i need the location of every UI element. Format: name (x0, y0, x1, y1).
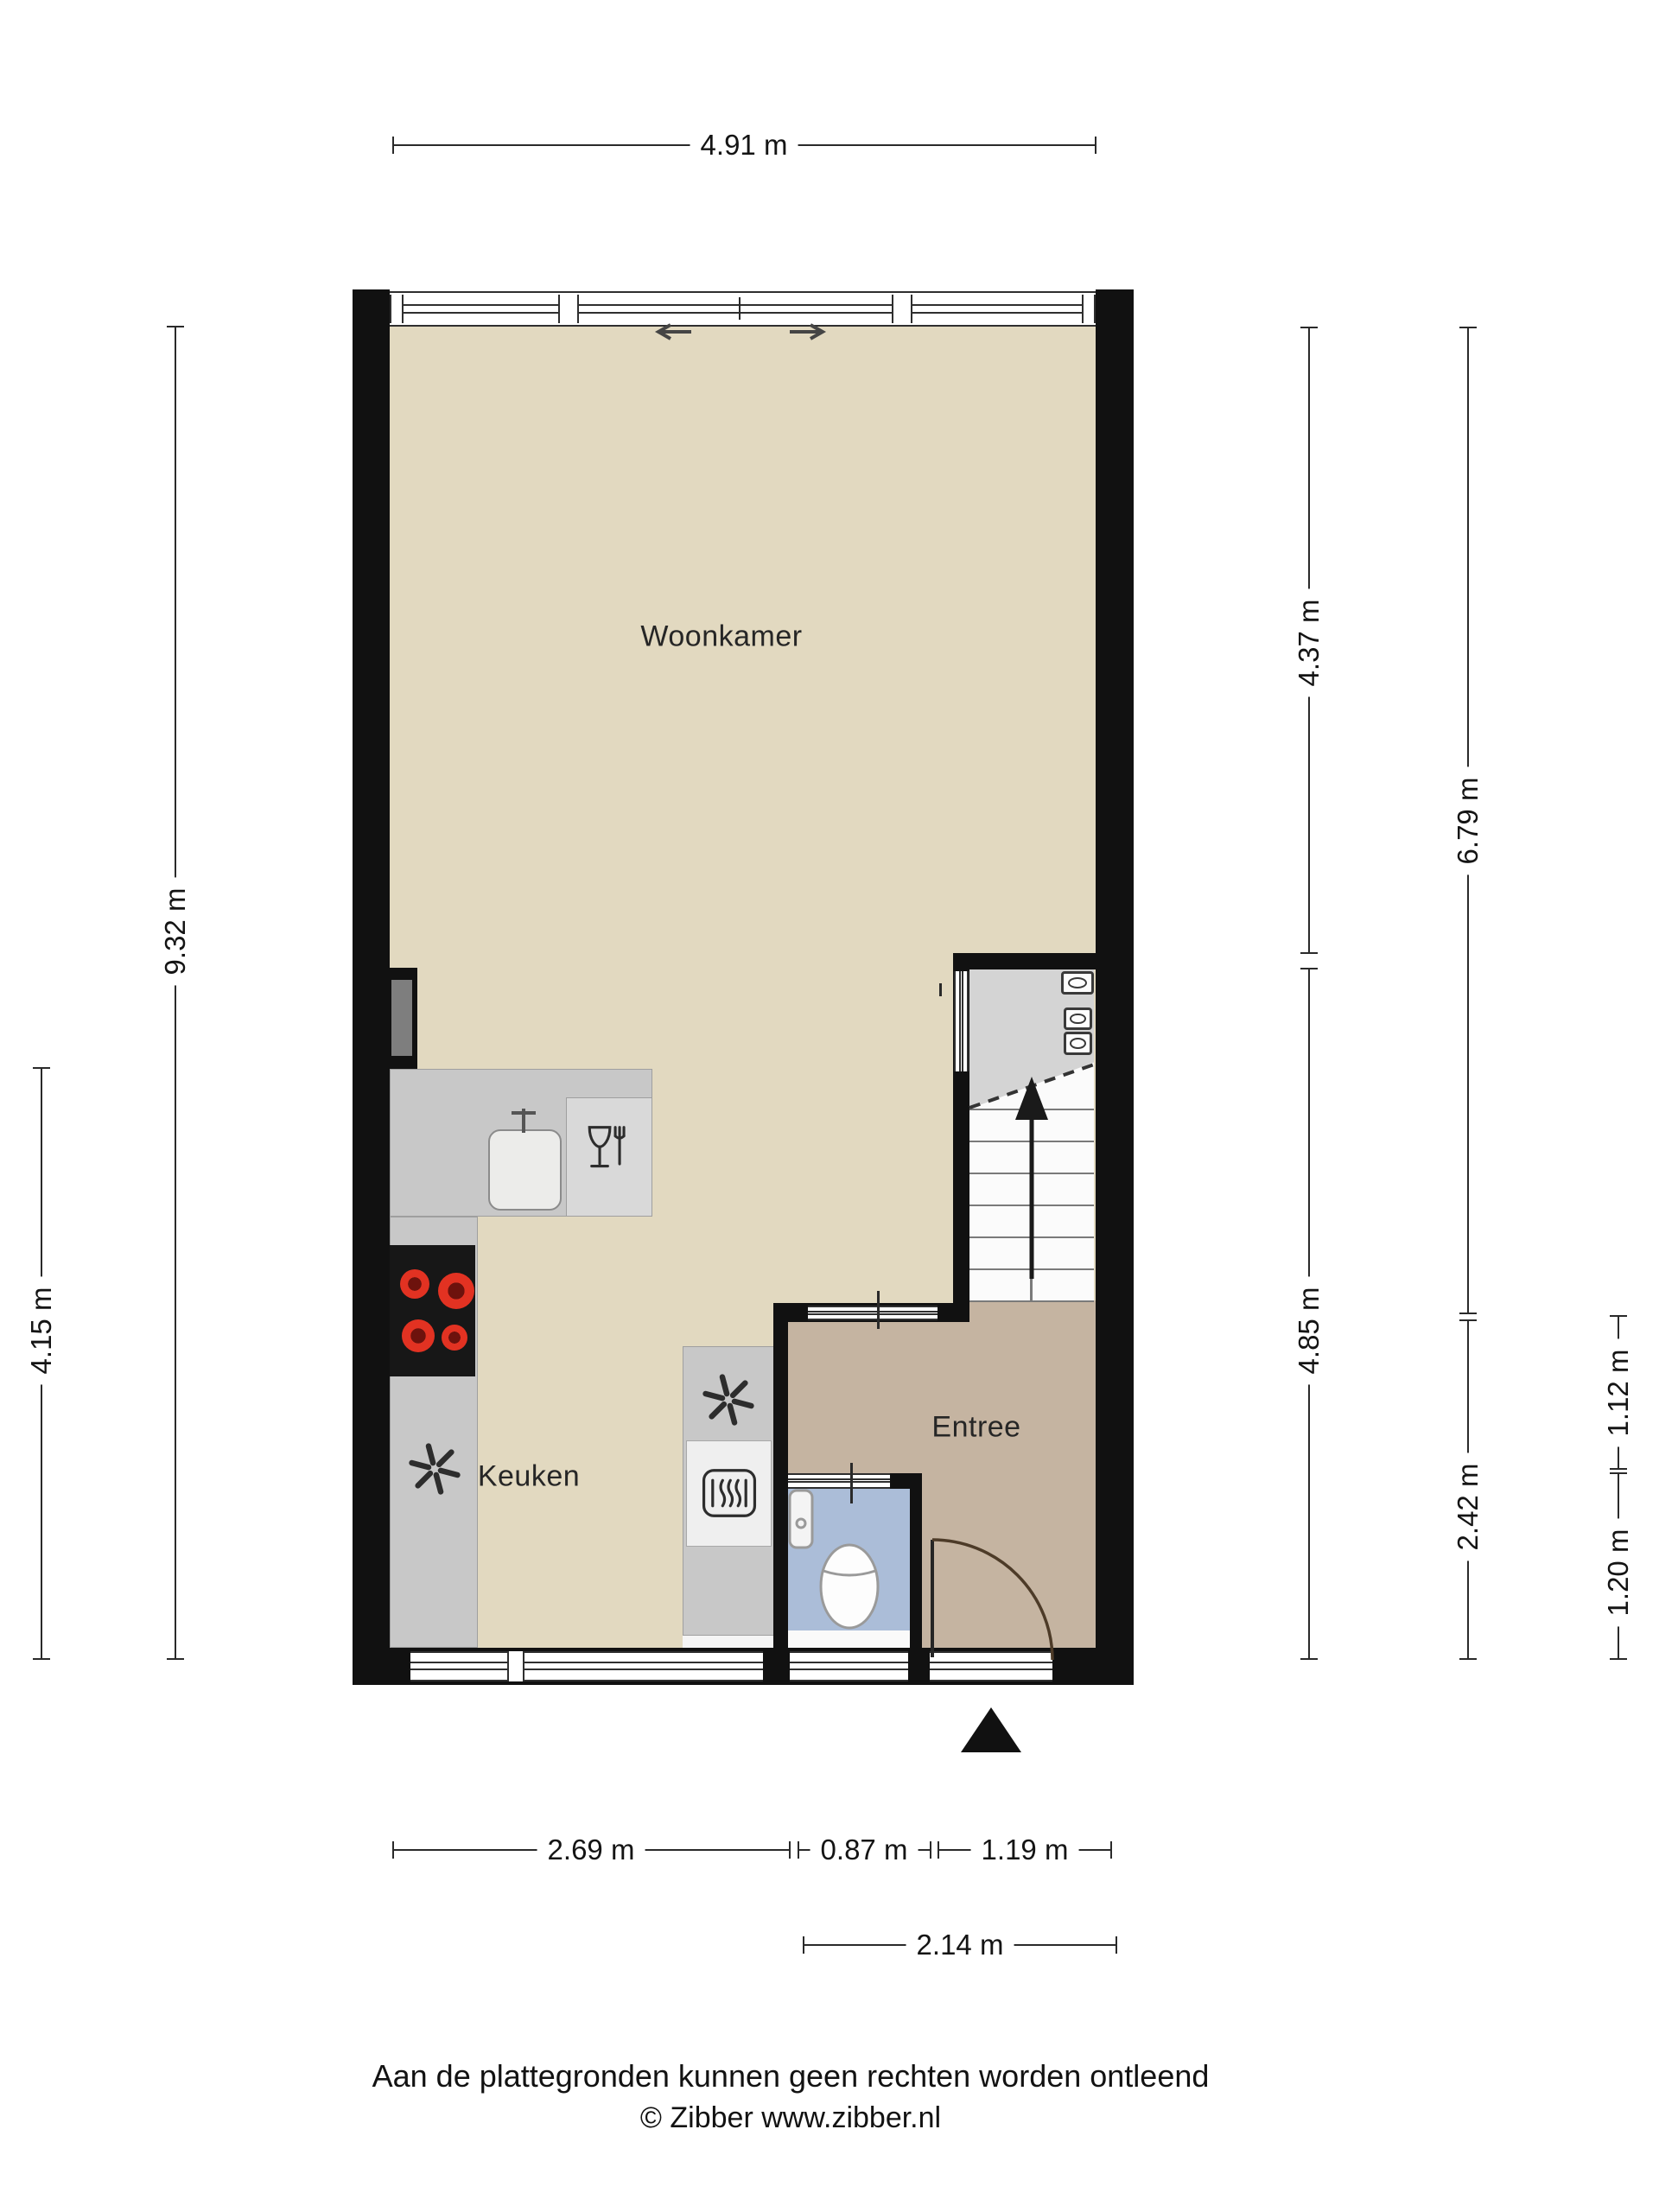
toilet-door-tick (850, 1463, 853, 1503)
floorplan-canvas: Woonkamer Keuken Entree 4.91 m 9.32 m 4.… (0, 0, 1659, 2212)
cooktop (390, 1245, 475, 1376)
footer-credit: © Zibber www.zibber.nl (640, 2101, 941, 2135)
interior-window (808, 1306, 938, 1320)
sink-tap-bar (512, 1111, 536, 1115)
kitchen-sink (488, 1129, 562, 1211)
dishwasher-icon (584, 1122, 632, 1175)
dimension-label: 2.69 m (537, 1832, 645, 1868)
window-center-tick (739, 297, 741, 320)
entree-floor-lower (922, 1473, 1096, 1648)
window-mullion (507, 1651, 524, 1681)
meter-unit-icon (1064, 1007, 1092, 1030)
oven-icon (702, 1467, 757, 1519)
ventilation-fan-icon (697, 1369, 760, 1431)
interior-window-tick (877, 1291, 880, 1329)
footer-disclaimer: Aan de plattegronden kunnen geen rechten… (372, 2058, 1210, 2094)
wall-toilet-right (910, 1473, 922, 1648)
dimension-label: 1.19 m (971, 1832, 1079, 1868)
window (790, 1651, 908, 1681)
wall-toilet-left (773, 1303, 788, 1685)
dimension-label: 9.32 m (157, 878, 194, 986)
wall-right (1096, 289, 1134, 1685)
dimension-label: 1.12 m (1600, 1339, 1637, 1447)
dimension-label: 4.15 m (23, 1277, 60, 1385)
entree-floor-under-stairs (969, 1300, 1096, 1475)
ventilation-fan-icon (404, 1438, 466, 1500)
meter-unit-icon (1061, 971, 1094, 995)
interior-window (954, 971, 969, 1071)
toilet-sill (788, 1630, 910, 1648)
room-label-entree: Entree (931, 1411, 1020, 1445)
window (390, 291, 1096, 327)
meter-unit-icon (1064, 1032, 1092, 1055)
window-end-cap (1082, 295, 1096, 323)
entree-floor-upper (788, 1322, 969, 1475)
burner-icon (400, 1269, 429, 1299)
room-label-keuken: Keuken (478, 1460, 580, 1494)
hand-basin-icon (788, 1489, 814, 1549)
wall-top-corner-left (353, 289, 390, 328)
window-mullion (558, 295, 579, 323)
wall-toilet-top (890, 1473, 910, 1489)
burner-icon (442, 1325, 467, 1351)
wall-left (353, 289, 390, 1685)
dimension-label: 4.85 m (1291, 1277, 1327, 1385)
dimension-label: 6.79 m (1450, 767, 1486, 875)
room-label-woonkamer: Woonkamer (640, 620, 802, 654)
toilet-door (788, 1473, 890, 1489)
stairs-center-rail (1030, 1109, 1033, 1300)
dimension-label: 4.91 m (690, 127, 798, 163)
wall-stair-top (953, 953, 1096, 969)
window-mullion (892, 295, 912, 323)
wall-niche-inset (391, 980, 412, 1056)
column-bottom-sliver (683, 1636, 775, 1648)
burner-icon (402, 1319, 435, 1352)
window (410, 1651, 763, 1681)
wall-top-corner-right (1096, 289, 1134, 328)
dimension-label: 2.14 m (906, 1927, 1014, 1963)
toilet-icon (817, 1540, 882, 1633)
front-door-threshold (930, 1651, 1052, 1681)
dimension-label: 4.37 m (1291, 589, 1327, 697)
dimension-label: 1.20 m (1600, 1519, 1637, 1627)
floor-tick (939, 983, 942, 996)
dimension-label: 0.87 m (810, 1832, 918, 1868)
burner-icon (438, 1273, 474, 1309)
entrance-marker-icon (961, 1707, 1021, 1752)
window-end-cap (390, 295, 404, 323)
dimension-label: 2.42 m (1450, 1453, 1486, 1561)
